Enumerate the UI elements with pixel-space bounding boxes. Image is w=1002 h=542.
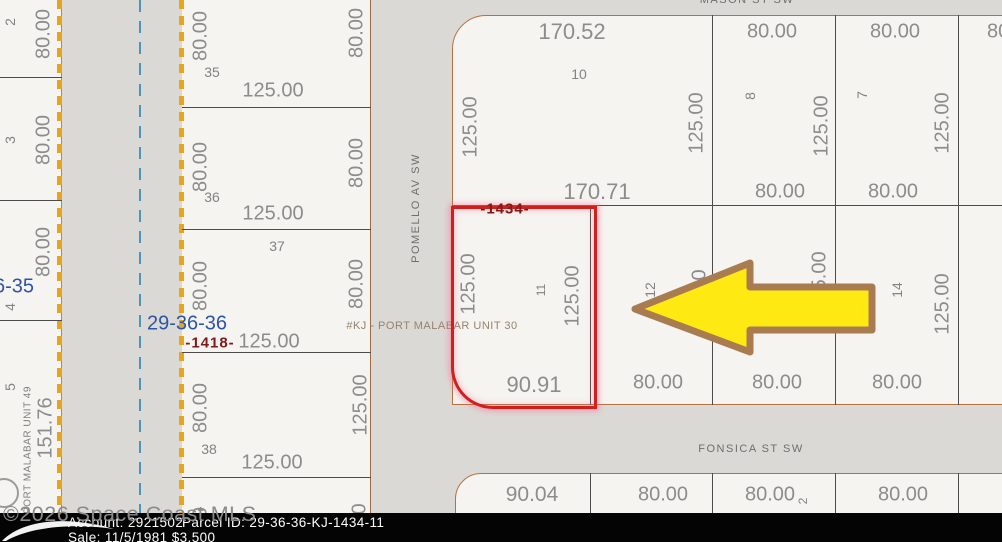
dimension-label: 125.00 — [242, 80, 303, 103]
lot-number: 7 — [854, 91, 870, 99]
street-label: FONSICA ST SW — [698, 443, 803, 455]
plat-number-label: -1418- — [185, 335, 234, 352]
lot-line — [0, 320, 62, 321]
lot-line — [590, 473, 591, 513]
dimension-label: 125.00 — [238, 331, 299, 354]
dimension-label: 80.00 — [346, 138, 369, 188]
dimension-label: 80.00 — [33, 115, 56, 165]
lot-line — [835, 473, 836, 513]
sale-value: Sale: 11/5/1981 $3,500 — [68, 530, 215, 542]
dimension-label: 90.04 — [506, 483, 559, 507]
lot-line — [182, 229, 371, 230]
dimension-label: 80.00 — [190, 142, 213, 192]
lot-number: 4 — [2, 303, 18, 311]
lot-line — [958, 473, 959, 513]
lot-number: 2 — [2, 18, 18, 26]
dimension-label: 125.00 — [242, 203, 303, 226]
lot-number: 8 — [742, 92, 758, 100]
dimension-label: 80.00 — [33, 227, 56, 277]
lot-number: 35 — [204, 64, 220, 80]
section-label: 6-35 — [0, 276, 34, 299]
lot-line — [182, 107, 371, 108]
lot-number: 36 — [204, 189, 220, 205]
dimension-label: 80.00 — [747, 21, 797, 44]
section-label: 29-36-36 — [147, 313, 227, 336]
lot-line — [182, 477, 371, 478]
lot-number: 37 — [269, 238, 285, 254]
lot-number: 2 — [796, 498, 810, 505]
lot-number: 5 — [2, 383, 18, 391]
dimension-label: 125.00 — [932, 273, 955, 334]
lot-number: 10 — [571, 66, 587, 82]
dimension-label: 125.00 — [809, 251, 832, 312]
lot-line — [0, 200, 62, 201]
lot-number: 14 — [889, 282, 905, 298]
dimension-label: 80.00 — [633, 372, 683, 395]
dimension-label: 125.00 — [811, 95, 834, 156]
dimension-label: 170.71 — [563, 179, 630, 205]
dimension-label: 125.00 — [686, 92, 709, 153]
dimension-label: 80.00 — [870, 21, 920, 44]
dimension-label: 80.00 — [638, 484, 688, 507]
dimension-label: 125.00 — [689, 269, 712, 330]
street-label: MASON ST SW — [700, 0, 795, 6]
dimension-label: 80.00 — [872, 372, 922, 395]
lot-number: 38 — [201, 441, 217, 457]
lot-line — [712, 473, 713, 513]
road-centerline — [139, 0, 141, 513]
dimension-label: 125.00 — [932, 92, 955, 153]
dimension-label: 170.52 — [538, 19, 605, 45]
lot-number: 12 — [642, 282, 658, 298]
dimension-label: 80.00 — [33, 9, 56, 59]
dimension-label: 125.00 — [460, 96, 483, 157]
dimension-label: 151.76 — [35, 397, 58, 458]
dimension-label: 80.00 — [190, 261, 213, 311]
dimension-label: 125.00 — [241, 452, 302, 475]
dimension-label: 80.00 — [346, 259, 369, 309]
dimension-label: 80.00 — [755, 181, 805, 204]
dimension-label: 80.00 — [346, 8, 369, 58]
dimension-label: 80.00 — [190, 383, 213, 433]
lot-line — [835, 15, 836, 405]
dimension-label: 125.00 — [350, 374, 373, 435]
lot-line — [712, 15, 713, 405]
plat-number-label: -1434- — [480, 201, 529, 218]
dimension-label: 80.00 — [878, 484, 928, 507]
copyright-watermark: ©2026 Space Coast MLS — [3, 502, 256, 527]
dimension-label: 80.00 — [190, 11, 213, 61]
road-edge-dash-right — [179, 0, 184, 513]
unit-49-label: PORT MALABAR UNIT 49 — [23, 386, 34, 514]
subject-parcel-outline — [451, 206, 597, 409]
dimension-label: 80.00 — [868, 181, 918, 204]
dimension-label: 80.00 — [745, 484, 795, 507]
lot-line — [958, 15, 959, 405]
dimension-label: 80.00 — [752, 372, 802, 395]
lot-line — [0, 77, 62, 78]
lot-number: 3 — [2, 136, 18, 144]
street-label: POMELLO AV SW — [410, 153, 422, 263]
dimension-label: 80.00 — [987, 21, 1002, 44]
plat-map-view[interactable]: 80.0080.0080.0080.00151.7680.0080.0080.0… — [0, 0, 1002, 542]
